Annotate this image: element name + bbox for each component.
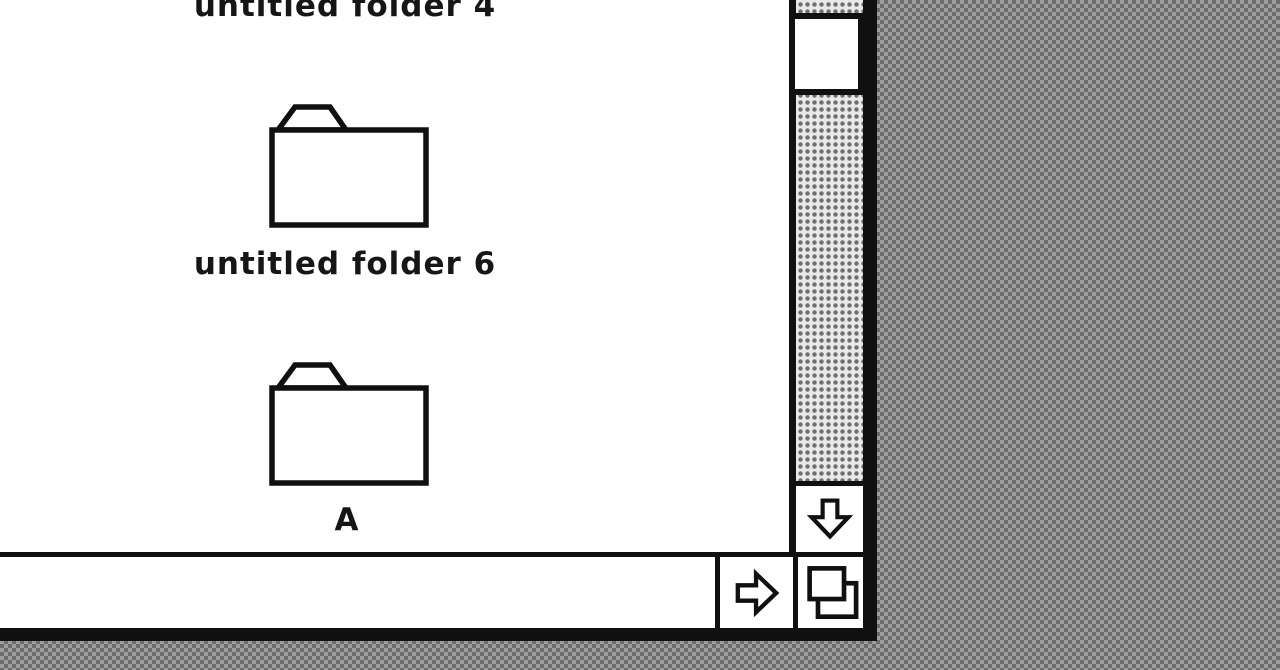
desktop-background: untitled folder 4 untitled folder 6 A bbox=[0, 0, 1280, 670]
right-arrow-icon bbox=[733, 569, 781, 617]
window-resize-grow-box[interactable] bbox=[798, 557, 863, 628]
folder-label-a[interactable]: A bbox=[147, 501, 547, 539]
folder-icon[interactable] bbox=[266, 358, 430, 488]
scroll-down-button[interactable] bbox=[796, 486, 863, 552]
window-bottom-border bbox=[0, 628, 877, 641]
scroll-right-button[interactable] bbox=[720, 557, 793, 628]
horizontal-scrollbar-track[interactable] bbox=[0, 557, 715, 628]
folder-label-untitled-folder-4[interactable]: untitled folder 4 bbox=[145, 0, 545, 24]
folder-icon[interactable] bbox=[266, 100, 430, 230]
folder-label-untitled-folder-6[interactable]: untitled folder 6 bbox=[145, 245, 545, 283]
window-right-border bbox=[863, 0, 877, 641]
vertical-scrollbar-thumb[interactable] bbox=[789, 13, 864, 95]
overlapping-squares-icon bbox=[800, 560, 862, 626]
finder-window-content: untitled folder 4 untitled folder 6 A bbox=[0, 0, 789, 552]
down-arrow-icon bbox=[807, 496, 853, 542]
